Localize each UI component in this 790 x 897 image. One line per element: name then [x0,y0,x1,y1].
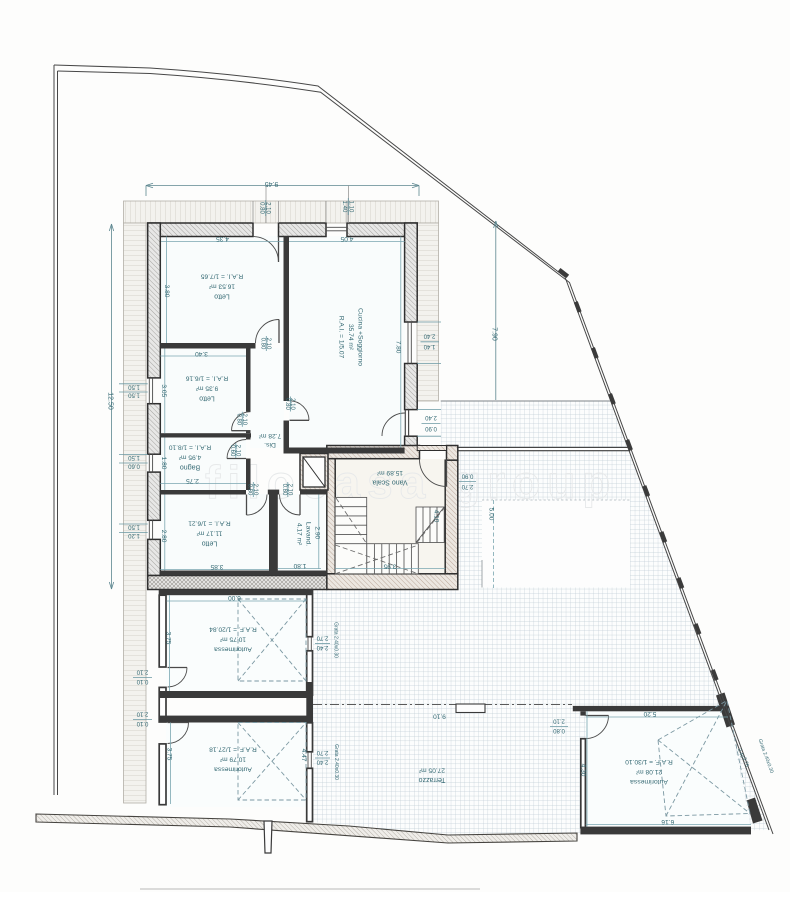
svg-text:9.10: 9.10 [433,713,446,720]
svg-text:Letto: Letto [202,540,218,547]
svg-text:4.95 m²: 4.95 m² [178,454,201,461]
svg-text:1.50: 1.50 [128,454,140,460]
svg-text:2.90: 2.90 [314,526,321,539]
svg-text:35.74 m²: 35.74 m² [347,324,354,351]
svg-text:2.10: 2.10 [241,413,247,425]
svg-text:2.10: 2.10 [235,445,241,457]
svg-text:3.80: 3.80 [163,285,170,298]
svg-text:R.A.I. = 1/7.65: R.A.I. = 1/7.65 [201,273,244,280]
svg-text:2.70: 2.70 [461,483,473,489]
svg-text:0.60: 0.60 [128,463,140,469]
svg-text:Cucina +Soggiorno: Cucina +Soggiorno [357,308,364,366]
svg-text:R.A.I. = 1/6.21: R.A.I. = 1/6.21 [188,520,231,527]
svg-text:4.05: 4.05 [340,235,353,242]
svg-text:3.40: 3.40 [195,350,208,357]
svg-text:5.00: 5.00 [488,508,495,521]
svg-text:2.40: 2.40 [316,759,328,765]
svg-text:2.10: 2.10 [252,484,258,496]
svg-text:15.89 m²: 15.89 m² [376,469,403,476]
svg-text:2.70: 2.70 [316,749,328,755]
svg-text:7.28 m²: 7.28 m² [258,432,281,439]
svg-text:0.60: 0.60 [229,445,235,457]
svg-text:2.10: 2.10 [136,711,148,717]
svg-text:Vano Scala: Vano Scala [372,479,407,486]
svg-text:2.40: 2.40 [316,644,328,650]
svg-text:2.75: 2.75 [186,477,199,484]
svg-text:4.17 m²: 4.17 m² [296,523,303,546]
svg-text:3.75: 3.75 [165,632,172,645]
svg-text:3.75: 3.75 [166,748,173,761]
svg-text:2.10: 2.10 [136,669,148,675]
svg-text:10.79 m²: 10.79 m² [219,756,246,763]
svg-text:3.05: 3.05 [160,384,167,397]
svg-text:2.10: 2.10 [289,398,295,410]
svg-text:2.40: 2.40 [425,414,437,420]
svg-text:0.90: 0.90 [461,472,473,478]
svg-text:2.80: 2.80 [160,530,167,543]
svg-text:9.45: 9.45 [265,180,279,187]
svg-text:1.40: 1.40 [423,343,435,349]
svg-text:4.35: 4.35 [216,235,229,242]
svg-text:4.30: 4.30 [580,764,587,777]
svg-text:Grata 2.40x0.30: Grata 2.40x0.30 [333,744,339,780]
svg-text:6.00: 6.00 [228,594,241,601]
svg-text:R.A.F. = 1/30.10: R.A.F. = 1/30.10 [625,758,673,765]
svg-text:6.16: 6.16 [661,818,674,825]
svg-text:16.53 m²: 16.53 m² [208,283,235,290]
svg-text:7.80: 7.80 [395,341,402,354]
svg-text:0.80: 0.80 [260,338,266,350]
svg-text:2.10: 2.10 [265,338,271,350]
svg-text:2.10: 2.10 [287,484,293,496]
svg-text:Autorimessa: Autorimessa [214,646,252,653]
svg-text:Lavand.: Lavand. [305,522,312,546]
svg-text:2.40: 2.40 [423,332,435,338]
svg-text:27.05 m²: 27.05 m² [418,767,445,774]
svg-text:1.50: 1.50 [128,524,140,530]
svg-text:Autorimessa: Autorimessa [214,766,252,773]
svg-text:0.80: 0.80 [553,727,565,733]
svg-text:1.50: 1.50 [128,392,140,398]
svg-text:5.20: 5.20 [643,710,656,717]
svg-text:1.10: 1.10 [348,201,354,213]
svg-text:0.90: 0.90 [425,425,437,431]
svg-text:Terrazzo: Terrazzo [418,776,445,783]
svg-text:11.17 m²: 11.17 m² [196,530,222,537]
svg-text:2.70: 2.70 [316,635,328,641]
svg-text:1.20: 1.20 [128,532,140,538]
svg-text:R.A.I. = 1/8.10: R.A.I. = 1/8.10 [169,444,212,451]
svg-text:1.50: 1.50 [128,383,140,389]
svg-text:filocasa group: filocasa group [205,456,617,508]
svg-text:Letto: Letto [214,293,230,300]
svg-text:4.10: 4.10 [433,510,440,523]
svg-text:10.75 m²: 10.75 m² [219,636,246,643]
svg-text:0.80: 0.80 [281,484,287,496]
svg-text:9.35 m²: 9.35 m² [195,385,218,392]
svg-text:3.95: 3.95 [383,563,396,570]
svg-text:R.A.F. = 1/27.18: R.A.F. = 1/27.18 [209,746,257,753]
svg-text:12.50: 12.50 [107,392,114,410]
svg-text:4.47: 4.47 [300,749,307,762]
svg-text:3.85: 3.85 [210,563,223,570]
svg-text:1.40: 1.40 [341,201,347,213]
svg-text:0.80: 0.80 [236,413,242,425]
svg-text:1.80: 1.80 [293,562,306,569]
svg-text:0.80: 0.80 [259,202,265,214]
svg-text:2.10: 2.10 [265,202,271,214]
svg-text:R.A.I. = 1/6.16: R.A.I. = 1/6.16 [186,375,229,382]
svg-text:Dis.: Dis. [264,441,276,448]
svg-text:0.10: 0.10 [136,720,148,726]
svg-text:R.A.I. = 1/5.07: R.A.I. = 1/5.07 [338,316,345,359]
svg-text:Grata 2.40x0.30: Grata 2.40x0.30 [333,622,339,658]
svg-text:1.80: 1.80 [160,457,167,470]
svg-text:21.08 m²: 21.08 m² [635,768,662,775]
svg-text:Bagno: Bagno [180,464,200,471]
svg-text:2.10: 2.10 [553,718,565,724]
svg-text:Letto: Letto [199,395,215,402]
svg-text:7.90: 7.90 [491,327,498,341]
svg-text:0.80: 0.80 [247,484,253,496]
svg-text:0.10: 0.10 [136,678,148,684]
svg-text:R.A.F. = 1/20.84: R.A.F. = 1/20.84 [209,626,257,633]
svg-text:Autorimessa: Autorimessa [630,778,668,785]
